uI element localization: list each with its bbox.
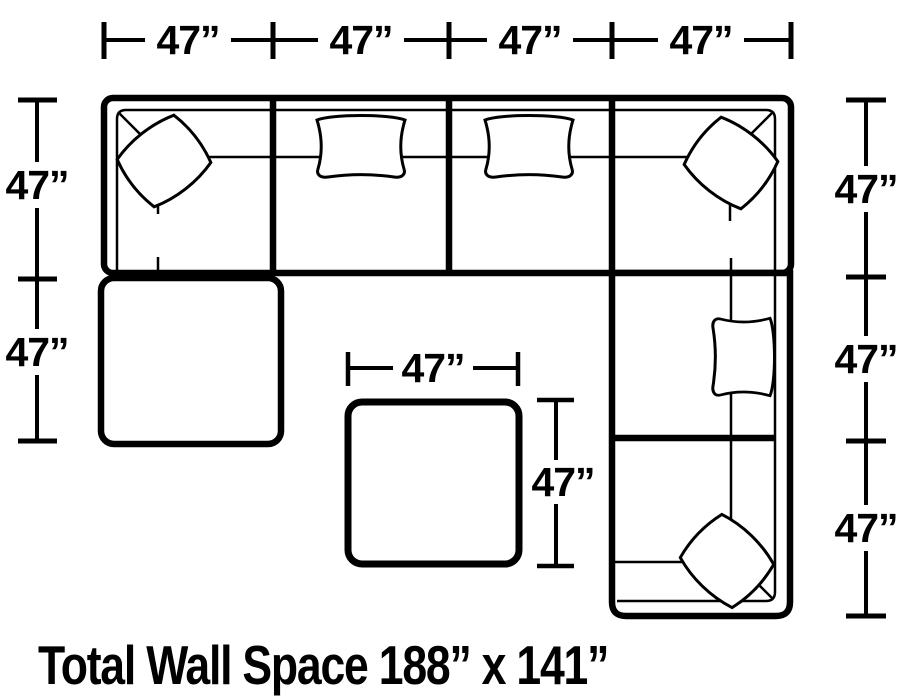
back-cushion-seat2 [317, 116, 405, 178]
sectional-layout-page: 47” 47” 47” 47” 47” 47” [0, 0, 923, 700]
dimension-label: 47” [531, 459, 594, 505]
dimension-label: 47” [156, 17, 219, 63]
ottoman-width-dimension: 47” [348, 345, 518, 391]
ottoman [348, 402, 519, 564]
left-dimension: 47” 47” [4, 100, 70, 441]
dimension-label: 47” [329, 17, 392, 63]
dimension-label: 47” [834, 505, 897, 551]
dimension-label: 47” [834, 166, 897, 212]
back-cushion-seat3 [485, 116, 573, 178]
dimension-label: 47” [669, 17, 732, 63]
dimension-label: 47” [834, 336, 897, 382]
right-dimension: 47” 47” 47” [833, 100, 899, 616]
back-cushion-right-seat [713, 318, 775, 395]
dimension-label: 47” [498, 17, 561, 63]
sectional-layout-diagram: 47” 47” 47” 47” 47” 47” [0, 0, 923, 700]
dimension-label: 47” [5, 162, 68, 208]
dimension-label: 47” [5, 329, 68, 375]
top-dimension: 47” 47” 47” 47” [104, 17, 791, 63]
sofa-left-armless-unit [101, 278, 281, 444]
ottoman-height-dimension: 47” [528, 400, 596, 566]
dimension-label: 47” [401, 345, 464, 391]
total-wall-space-label: Total Wall Space 188” x 141” [38, 633, 608, 697]
